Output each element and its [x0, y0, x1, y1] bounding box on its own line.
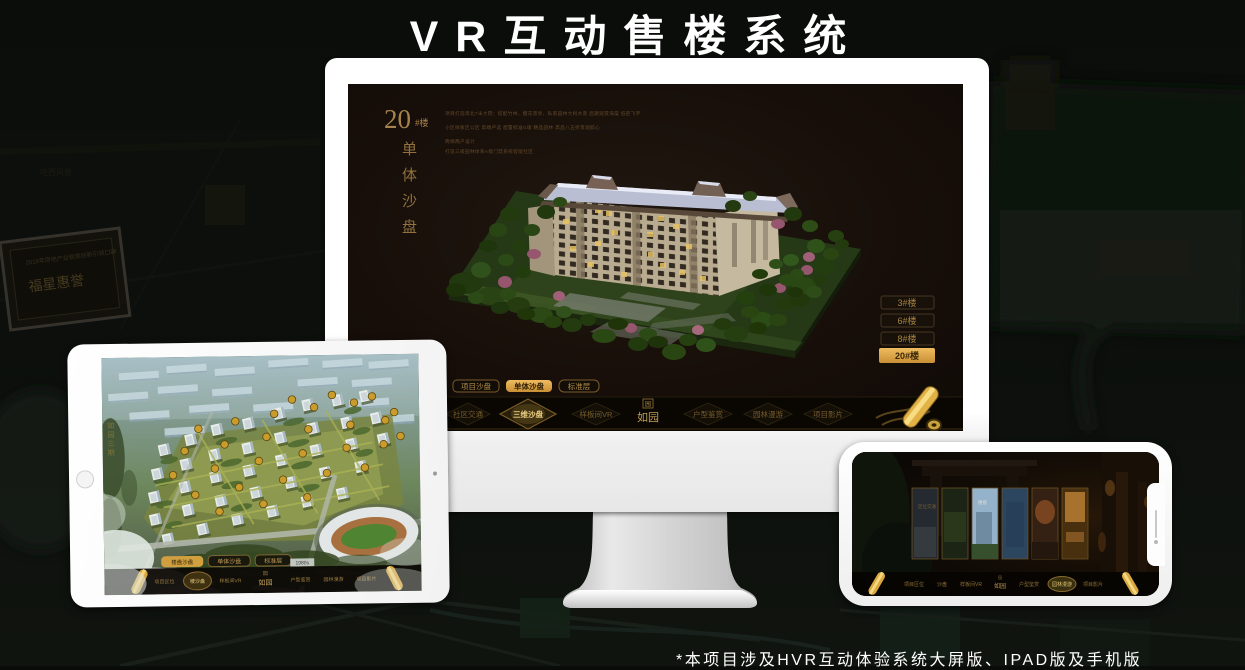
- svg-text:户型鉴赏: 户型鉴赏: [290, 576, 310, 583]
- svg-text:3#楼: 3#楼: [897, 297, 916, 308]
- svg-text:楼沙盘: 楼沙盘: [190, 578, 205, 585]
- svg-text:标准层: 标准层: [568, 381, 591, 391]
- svg-text:体: 体: [402, 167, 417, 184]
- svg-text:20: 20: [384, 104, 411, 134]
- svg-text:项目影片: 项目影片: [1083, 581, 1103, 588]
- svg-text:#楼: #楼: [415, 117, 429, 128]
- svg-text:项目打造南北7米大院：搭配竹林、樱花景亭、私家园林大树水景: 项目打造南北7米大院：搭配竹林、樱花景亭、私家园林大树水景 后期观赏海棠 低密飞…: [445, 110, 641, 117]
- svg-text:20#楼: 20#楼: [895, 350, 919, 361]
- svg-text:标准层: 标准层: [264, 557, 282, 565]
- svg-text:区位交通: 区位交通: [918, 503, 936, 510]
- svg-text:园: 园: [998, 574, 1002, 580]
- svg-text:沙盘: 沙盘: [937, 581, 947, 588]
- svg-text:园: 园: [107, 431, 114, 439]
- svg-text:如: 如: [107, 421, 114, 430]
- svg-text:楼盘: 楼盘: [978, 499, 987, 506]
- svg-text:1980s: 1980s: [295, 560, 309, 566]
- svg-text:项目区位: 项目区位: [904, 581, 924, 588]
- svg-text:项目沙盘: 项目沙盘: [461, 381, 491, 391]
- svg-text:8#楼: 8#楼: [897, 333, 916, 344]
- svg-text:如园: 如园: [994, 582, 1006, 590]
- svg-text:单体沙盘: 单体沙盘: [514, 381, 544, 391]
- svg-text:盘: 盘: [402, 218, 417, 236]
- svg-text:园林漫游: 园林漫游: [1052, 581, 1072, 588]
- svg-text:打造三级园林体系A级门禁系统智能社区: 打造三级园林体系A级门禁系统智能社区: [445, 148, 533, 155]
- svg-text:户型鉴赏: 户型鉴赏: [1019, 581, 1039, 588]
- svg-text:园: 园: [263, 571, 268, 577]
- svg-text:两梯两户设计: 两梯两户设计: [445, 138, 475, 145]
- svg-text:园林漫游: 园林漫游: [323, 576, 343, 583]
- svg-text:社区交通: 社区交通: [453, 409, 483, 419]
- svg-text:三: 三: [108, 440, 115, 448]
- svg-text:沙: 沙: [402, 194, 417, 210]
- svg-text:三维沙盘: 三维沙盘: [513, 409, 543, 419]
- svg-text:样板间VR: 样板间VR: [580, 409, 614, 419]
- svg-text:项目区位: 项目区位: [154, 578, 174, 585]
- svg-text:6#楼: 6#楼: [897, 315, 916, 326]
- svg-text:园林漫游: 园林漫游: [753, 409, 783, 419]
- svg-text:哈西风景: 哈西风景: [40, 167, 72, 177]
- svg-text:单: 单: [402, 141, 417, 158]
- svg-text:户型鉴赏: 户型鉴赏: [693, 409, 723, 419]
- svg-text:项目影片: 项目影片: [813, 409, 843, 419]
- svg-text:样板间VR: 样板间VR: [960, 581, 982, 588]
- svg-text:园: 园: [645, 401, 651, 408]
- svg-text:样板间VR: 样板间VR: [219, 577, 241, 584]
- svg-text:如园: 如园: [258, 578, 272, 587]
- svg-text:小区样板区公区 高端严选 配置标准G级 精品园林 高品八五折: 小区样板区公区 高端严选 配置标准G级 精品园林 高品八五折景观醉心: [445, 124, 600, 131]
- svg-text:期: 期: [108, 449, 115, 457]
- svg-text:如园: 如园: [637, 410, 659, 424]
